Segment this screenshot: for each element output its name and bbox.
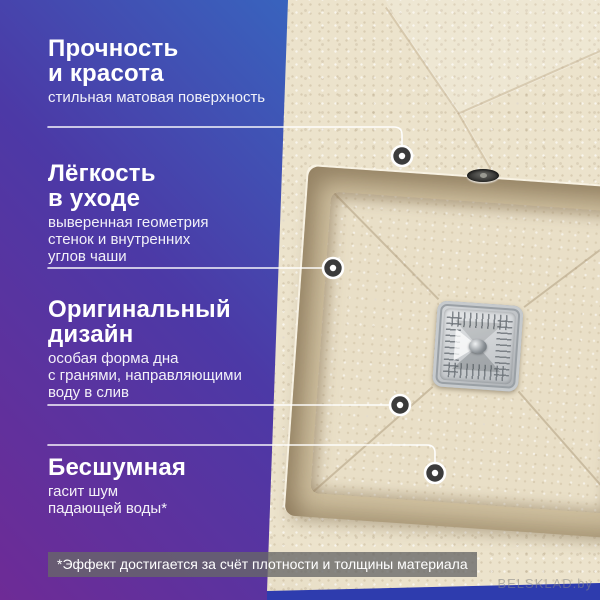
feature-block-durability: Прочность и красота стильная матовая пов… bbox=[48, 36, 298, 106]
feature-description-line: стильная матовая поверхность bbox=[48, 89, 265, 106]
feature-description-line: углов чаши bbox=[48, 248, 127, 265]
feature-description-line: выверенная геометрия bbox=[48, 214, 208, 231]
feature-description-line: стенок и внутренних bbox=[48, 231, 190, 248]
feature-title: Лёгкость в уходе bbox=[48, 161, 298, 211]
footnote: *Эффект достигается за счёт плотности и … bbox=[48, 552, 477, 577]
feature-title: Прочность и красота bbox=[48, 36, 298, 86]
watermark: BELSKLAD.by bbox=[497, 576, 593, 591]
feature-title: Оригинальный дизайн bbox=[48, 297, 298, 347]
feature-block-easy-care: Лёгкость в уходе выверенная геометрия ст… bbox=[48, 161, 298, 265]
feature-title-line: дизайн bbox=[48, 321, 133, 348]
feature-description-line: особая форма дна bbox=[48, 350, 178, 367]
feature-description: стильная матовая поверхность bbox=[48, 89, 298, 106]
feature-title-line: в уходе bbox=[48, 185, 140, 212]
feature-description-line: с гранями, направляющими bbox=[48, 367, 242, 384]
feature-description: особая форма дна с гранями, направляющим… bbox=[48, 350, 298, 401]
feature-title-line: и красота bbox=[48, 60, 164, 87]
feature-title-line: Оригинальный bbox=[48, 296, 231, 323]
feature-block-silent: Бесшумная гасит шум падающей воды* bbox=[48, 455, 298, 517]
feature-description: гасит шум падающей воды* bbox=[48, 483, 298, 517]
feature-block-original-design: Оригинальный дизайн особая форма дна с г… bbox=[48, 297, 298, 401]
feature-title-line: Прочность bbox=[48, 35, 178, 62]
feature-title-line: Бесшумная bbox=[48, 454, 186, 481]
feature-description-line: гасит шум bbox=[48, 483, 118, 500]
feature-description-line: падающей воды* bbox=[48, 500, 167, 517]
infographic-canvas: Прочность и красота стильная матовая пов… bbox=[0, 0, 600, 600]
feature-title-line: Лёгкость bbox=[48, 160, 156, 187]
feature-description-line: воду в слив bbox=[48, 384, 129, 401]
feature-title: Бесшумная bbox=[48, 455, 298, 480]
feature-description: выверенная геометрия стенок и внутренних… bbox=[48, 214, 298, 265]
